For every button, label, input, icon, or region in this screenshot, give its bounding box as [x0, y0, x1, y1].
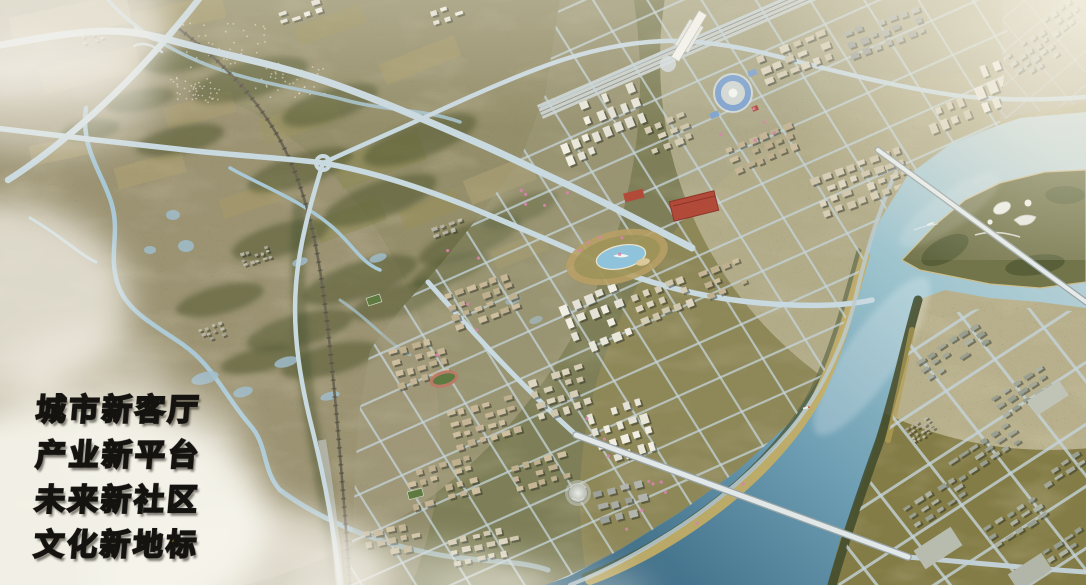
- slogan-line-4: 文化新地标: [32, 523, 201, 568]
- blossom-tree: [618, 253, 621, 256]
- slogan-line-1: 城市新客厅: [34, 388, 213, 433]
- blossom-tree: [660, 480, 663, 483]
- blossom-tree: [466, 302, 469, 305]
- blossom-tree: [475, 328, 478, 331]
- blossom-tree: [578, 249, 581, 252]
- blossom-tree: [598, 236, 601, 239]
- blossom-tree: [620, 236, 623, 239]
- blossom-tree: [543, 204, 546, 207]
- pond: [166, 210, 180, 220]
- blossom-tree: [585, 417, 588, 420]
- blossom-tree: [477, 257, 480, 260]
- blossom-tree: [607, 455, 610, 458]
- blossom-tree: [436, 353, 439, 356]
- blossom-tree: [566, 191, 569, 194]
- blossom-tree: [446, 249, 449, 252]
- blossom-tree: [520, 189, 523, 192]
- blossom-tree: [664, 491, 667, 494]
- blossom-tree: [742, 482, 745, 485]
- blossom-tree: [524, 193, 527, 196]
- blossom-tree: [651, 482, 654, 485]
- slogan-line-2: 产业新平台: [34, 433, 209, 478]
- boat-cabin: [808, 406, 810, 407]
- blossom-tree: [524, 203, 527, 206]
- blossom-tree: [640, 509, 643, 512]
- blossom-tree: [587, 241, 590, 244]
- blossom-tree: [603, 438, 606, 441]
- blossom-tree: [647, 480, 650, 483]
- aerial-city-rendering: 城市新客厅 产业新平台 未来新社区 文化新地标: [0, 0, 1086, 585]
- blossom-tree: [696, 521, 699, 524]
- pond: [144, 246, 156, 254]
- pond: [178, 240, 194, 252]
- slogan: 城市新客厅 产业新平台 未来新社区 文化新地标: [22, 388, 213, 568]
- slogan-line-3: 未来新社区: [33, 478, 205, 523]
- blossom-tree: [625, 528, 628, 531]
